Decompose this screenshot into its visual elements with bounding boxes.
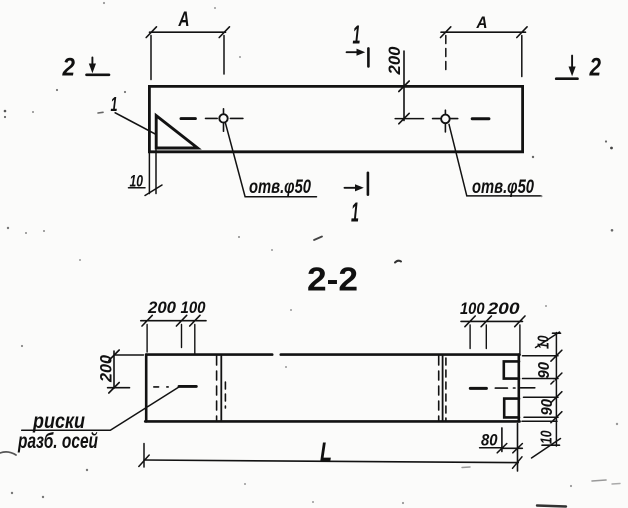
- svg-text:1: 1: [353, 20, 361, 50]
- svg-text:200: 200: [385, 46, 404, 76]
- svg-text:А: А: [178, 8, 190, 31]
- svg-text:А: А: [476, 13, 488, 32]
- svg-text:2: 2: [62, 54, 75, 82]
- svg-text:2: 2: [589, 54, 601, 82]
- svg-text:1: 1: [111, 94, 118, 116]
- svg-text:10: 10: [539, 430, 556, 444]
- svg-text:10: 10: [536, 335, 553, 349]
- svg-text:100: 100: [181, 298, 206, 317]
- svg-text:10: 10: [130, 171, 144, 190]
- svg-text:80: 80: [481, 431, 498, 450]
- svg-text:200: 200: [97, 354, 116, 382]
- svg-text:1: 1: [351, 197, 359, 228]
- svg-text:200: 200: [486, 299, 520, 318]
- svg-text:200: 200: [147, 298, 177, 317]
- svg-text:отв.φ50: отв.φ50: [249, 176, 311, 198]
- svg-text:2-2: 2-2: [307, 261, 358, 298]
- svg-text:отв.φ50: отв.φ50: [472, 176, 534, 198]
- svg-text:разб. осей: разб. осей: [17, 430, 98, 453]
- svg-text:100: 100: [460, 299, 485, 318]
- svg-text:90: 90: [536, 362, 553, 379]
- svg-text:L: L: [320, 437, 332, 467]
- svg-text:90: 90: [539, 399, 556, 416]
